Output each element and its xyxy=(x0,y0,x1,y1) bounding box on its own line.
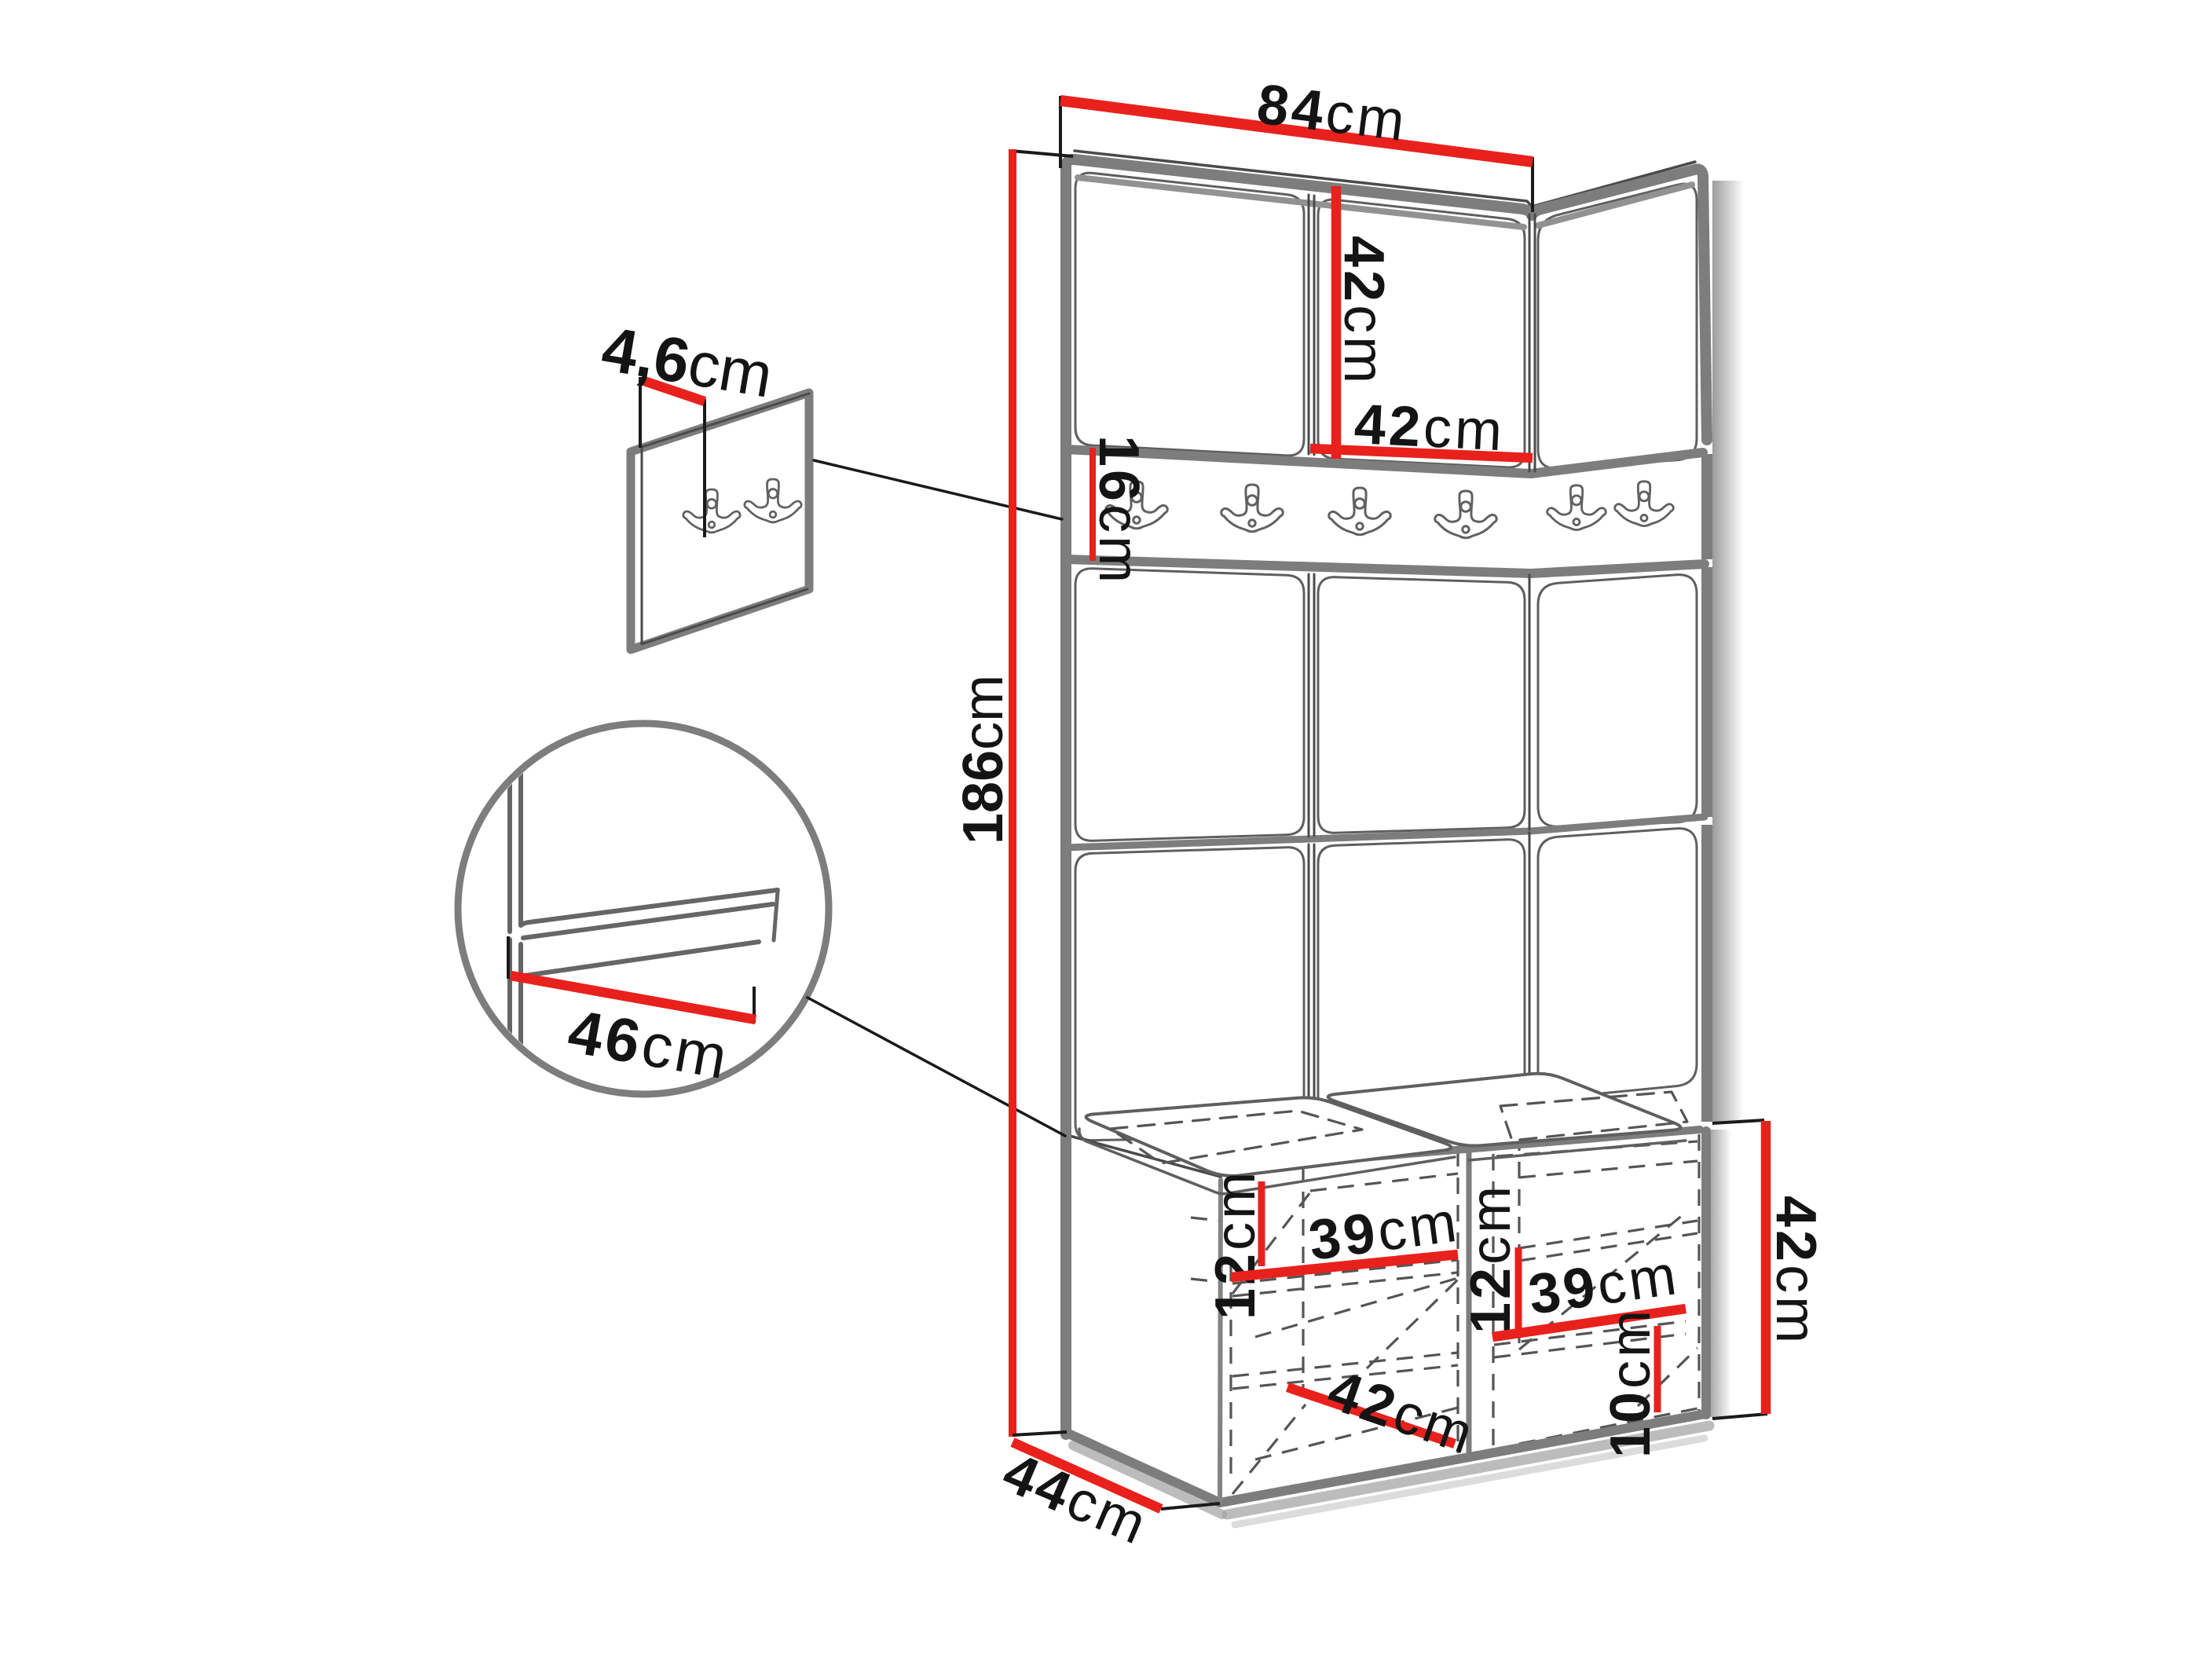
svg-text:16cm: 16cm xyxy=(1087,435,1150,586)
svg-text:186cm: 186cm xyxy=(952,675,1015,844)
svg-text:42cm: 42cm xyxy=(1764,1196,1827,1346)
svg-text:42cm: 42cm xyxy=(1332,236,1395,386)
svg-text:12cm: 12cm xyxy=(1459,1183,1522,1334)
svg-text:10cm: 10cm xyxy=(1599,1307,1662,1458)
svg-text:42cm: 42cm xyxy=(1353,393,1507,463)
svg-text:12cm: 12cm xyxy=(1204,1169,1267,1320)
